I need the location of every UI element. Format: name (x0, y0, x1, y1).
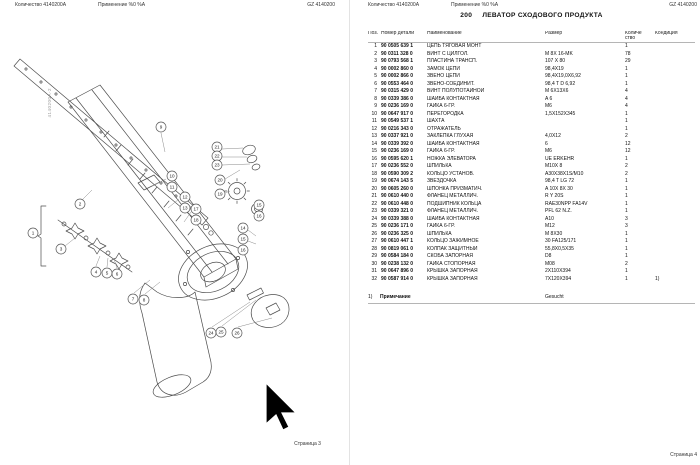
cell-qty: 1 (625, 193, 655, 201)
cell-size: M10X 8 (545, 163, 625, 171)
mouse-cursor-icon (264, 382, 300, 432)
table-row: 290 0311 328 0ВИНТ С ЦИЛГОЛ.M 8X 16-MK78 (368, 51, 695, 59)
cell-qty: 1 (625, 208, 655, 216)
cell-size: 98,4X19,0X6,92 (545, 73, 625, 81)
section-title: 200 ЛЕВАТОР СХОДОВОГО ПРОДУКТА (368, 12, 695, 19)
col-condition: Кондиция (655, 31, 695, 41)
cell-name: КРЫШКА ЗАПОРНАЯ (427, 268, 545, 276)
cell-pos: 13 (368, 133, 381, 141)
table-row: 3090 0238 132 0ГАЙКА СТОПОРНАЯM082 (368, 261, 695, 269)
cell-name: ШПИЛЬКА (427, 231, 545, 239)
balloon-label: 19 (217, 192, 223, 197)
table-row: 3290 0587 914 0КРЫШКА ЗАПОРНАЯ7X120X3941… (368, 276, 695, 284)
cell-qty: 4 (625, 96, 655, 104)
balloon-label: 9 (160, 125, 163, 130)
table-row: 1090 0647 917 0ПЕРЕГОРОДКА1,5X152X3451 (368, 111, 695, 119)
cell-size: 55,8X0,5X35 (545, 246, 625, 254)
table-row: 3190 0647 896 0КРЫШКА ЗАПОРНАЯ2X110X3941 (368, 268, 695, 276)
table-row: 2690 0236 325 0ШПИЛЬКАM 8X301 (368, 231, 695, 239)
cell-size: 98,4 T LG 72 (545, 178, 625, 186)
cell-size: A 10X 8X 30 (545, 186, 625, 194)
cell-pos: 17 (368, 163, 381, 171)
cell-part: 90 0647 896 0 (381, 268, 427, 276)
cell-qty: 2 (625, 133, 655, 141)
cell-cond (655, 133, 695, 141)
page-footer-left: Страница 3 (265, 441, 350, 447)
cell-qty: 1 (625, 66, 655, 74)
cell-qty: 1 (625, 118, 655, 126)
cell-name: ПЕРЕГОРОДКА (427, 111, 545, 119)
cell-part: 90 0819 061 0 (381, 246, 427, 254)
cell-qty: 2 (625, 163, 655, 171)
balloon-label: 21 (214, 145, 220, 150)
cell-size (545, 118, 625, 126)
table-row: 1790 0236 552 0ШПИЛЬКАM10X 82 (368, 163, 695, 171)
cell-name: ГАЙКА 6-ГР. (427, 103, 545, 111)
cell-qty: 1 (625, 178, 655, 186)
cell-name: ОТРАЖАТЕЛЬ (427, 126, 545, 134)
cell-pos: 12 (368, 126, 381, 134)
table-row: 2090 0605 260 0ШПОНКА ПРИЗМАТИЧ.A 10X 8X… (368, 186, 695, 194)
cell-name: ЗВЕНО-СОЕДИНИТ. (427, 81, 545, 89)
cell-cond (655, 111, 695, 119)
table-header-row: Поз. Номер детали Наименование Размер Ко… (368, 31, 695, 41)
cell-cond (655, 186, 695, 194)
cell-part: 90 0584 184 0 (381, 253, 427, 261)
cell-part: 90 0337 921 0 (381, 133, 427, 141)
cell-part: 90 0236 552 0 (381, 163, 427, 171)
table-row: 2890 0819 061 0КОЛПАК ЗАЩИТНЫЙ55,8X0,5X3… (368, 246, 695, 254)
balloon-label: 20 (217, 178, 223, 183)
cell-pos: 5 (368, 73, 381, 81)
cell-part: 90 0339 321 0 (381, 208, 427, 216)
cell-size: A 6 (545, 96, 625, 104)
cell-size: R Y 20S (545, 193, 625, 201)
table-row: 2590 0236 171 0ГАЙКА 6-ГР.M123 (368, 223, 695, 231)
cell-name: КРЫШКА ЗАПОРНАЯ (427, 276, 545, 284)
cell-qty: 1 (625, 276, 655, 284)
cell-cond (655, 238, 695, 246)
cell-pos: 10 (368, 111, 381, 119)
cell-cond (655, 246, 695, 254)
cell-pos: 3 (368, 58, 381, 66)
header-quantity: Количество 4140200A (368, 2, 419, 8)
table-row: 1590 0236 169 0ГАЙКА 6-ГР.M612 (368, 148, 695, 156)
cell-name: ГАЙКА СТОПОРНАЯ (427, 261, 545, 269)
cell-cond (655, 163, 695, 171)
cell-part: 90 0610 448 0 (381, 201, 427, 209)
cell-pos: 30 (368, 261, 381, 269)
cell-part: 90 0236 169 0 (381, 148, 427, 156)
cell-qty: 1 (625, 238, 655, 246)
cell-qty: 1 (625, 253, 655, 261)
cell-cond (655, 43, 695, 51)
cell-qty: 78 (625, 51, 655, 59)
cell-size: M08 (545, 261, 625, 269)
cell-qty: 1 (625, 73, 655, 81)
cell-cond (655, 126, 695, 134)
cell-pos: 16 (368, 156, 381, 164)
cell-qty: 1 (625, 81, 655, 89)
balloon-label: 15 (256, 203, 262, 208)
table-row: 390 0793 568 1ПЛАСТИНА ТРАНСП.107 X 8029 (368, 58, 695, 66)
cell-name: ВИНТ ПОЛУПОТАЙНОЙ (427, 88, 545, 96)
cell-size: M12 (545, 223, 625, 231)
cell-part: 90 0311 328 0 (381, 51, 427, 59)
cell-part: 90 0647 917 0 (381, 111, 427, 119)
cell-name: ЗВЕНО ЦЕПИ (427, 73, 545, 81)
balloon-label: 16 (240, 248, 246, 253)
cell-qty: 1 (625, 268, 655, 276)
section-number: 200 (460, 12, 472, 19)
balloon-label: 25 (218, 330, 224, 335)
table-row: 1990 0674 143 5ЗВЕЗДОЧКА98,4 T LG 721 (368, 178, 695, 186)
cell-part: 90 0238 132 0 (381, 261, 427, 269)
balloon-label: 22 (214, 154, 220, 159)
cell-pos: 24 (368, 216, 381, 224)
section-title-text: ЛЕВАТОР СХОДОВОГО ПРОДУКТА (482, 12, 602, 19)
table-row: 990 0236 169 0ГАЙКА 6-ГР.M64 (368, 103, 695, 111)
cell-qty: 1 (625, 111, 655, 119)
balloon-label: 3 (60, 247, 63, 252)
cell-size: UE ERKEHR (545, 156, 625, 164)
table-row: 2490 0339 388 0ШАЙБА КОНТАКТНАЯA103 (368, 216, 695, 224)
cell-part: 90 0505 639 1 (381, 43, 427, 51)
cell-cond (655, 58, 695, 66)
cell-pos: 31 (368, 268, 381, 276)
cell-cond (655, 171, 695, 179)
cell-cond (655, 88, 695, 96)
table-row: 490 0002 860 0ЗАМОК ЦЕПИ98,4X191 (368, 66, 695, 74)
cell-pos: 11 (368, 118, 381, 126)
cell-part: 90 0610 447 1 (381, 238, 427, 246)
cell-size: A10 (545, 216, 625, 224)
cell-size (545, 126, 625, 134)
cell-cond (655, 201, 695, 209)
cell-part: 90 0610 440 0 (381, 193, 427, 201)
cell-part: 90 0674 143 5 (381, 178, 427, 186)
cell-part: 90 0339 386 0 (381, 96, 427, 104)
cell-part: 90 0587 914 0 (381, 276, 427, 284)
table-row: 1490 0339 392 0ШАЙБА КОНТАКТНАЯ612 (368, 141, 695, 149)
cell-cond (655, 156, 695, 164)
cell-size: A30X38X1S/M10 (545, 171, 625, 179)
cell-size: M6 (545, 103, 625, 111)
cell-qty: 1 (625, 126, 655, 134)
cell-name: ЗАКЛЕПКА ГЛУХАЯ (427, 133, 545, 141)
header-usage: Применение %0 %A (451, 2, 498, 8)
cell-name: ЦЕПЬ ТЯГОВАЯ МОНТ (427, 43, 545, 51)
cell-pos: 23 (368, 208, 381, 216)
cell-name: ГАЙКА 6-ГР. (427, 223, 545, 231)
cell-pos: 29 (368, 253, 381, 261)
parts-table-body: 190 0505 639 1ЦЕПЬ ТЯГОВАЯ МОНТ1290 0311… (368, 43, 695, 283)
cell-name: КОЛЬЦО УСТАНОВ. (427, 171, 545, 179)
cell-name: ГАЙКА 6-ГР. (427, 148, 545, 156)
balloon-label: 10 (169, 174, 175, 179)
cell-cond (655, 103, 695, 111)
cell-part: 90 0236 169 0 (381, 103, 427, 111)
cell-pos: 15 (368, 148, 381, 156)
cell-size: 1,5X152X345 (545, 111, 625, 119)
cell-cond (655, 178, 695, 186)
table-row: 1890 0590 309 2КОЛЬЦО УСТАНОВ.A30X38X1S/… (368, 171, 695, 179)
cell-pos: 22 (368, 201, 381, 209)
cell-qty: 1 (625, 43, 655, 51)
cell-part: 90 0339 392 0 (381, 141, 427, 149)
cell-part: 90 0002 866 0 (381, 73, 427, 81)
cell-part: 90 0553 464 0 (381, 81, 427, 89)
table-row: 690 0553 464 0ЗВЕНО-СОЕДИНИТ.98,4 T D 6,… (368, 81, 695, 89)
cell-size (545, 43, 625, 51)
cell-size: 98,4 T D 6,92 (545, 81, 625, 89)
cell-size: 4,0X12 (545, 133, 625, 141)
cell-part: 90 0002 860 0 (381, 66, 427, 74)
cell-cond (655, 148, 695, 156)
cell-name: ШАЙБА КОНТАКТНАЯ (427, 216, 545, 224)
cell-size: 6 (545, 141, 625, 149)
table-row: 1690 0595 620 1НОЖКА ЭЛЕВАТОРАUE ERKEHR1 (368, 156, 695, 164)
cell-pos: 27 (368, 238, 381, 246)
balloon-label: 6 (116, 272, 119, 277)
table-row: 2190 0610 440 0ФЛАНЕЦ МЕТАЛЛИЧ.R Y 20S1 (368, 193, 695, 201)
balloon-label: 1 (32, 231, 35, 236)
cell-qty: 4 (625, 88, 655, 96)
cell-pos: 14 (368, 141, 381, 149)
cell-cond (655, 51, 695, 59)
balloon-label: 14 (240, 226, 246, 231)
cell-name: КОЛПАК ЗАЩИТНЫЙ (427, 246, 545, 254)
balloon-label: 8 (143, 298, 146, 303)
cell-size: 107 X 80 (545, 58, 625, 66)
cell-cond (655, 268, 695, 276)
cell-part: 90 0216 343 0 (381, 126, 427, 134)
table-row: 2790 0610 447 1КОЛЬЦО ЗАЖИМНОЕ30 FA125/1… (368, 238, 695, 246)
cell-part: 90 0549 537 1 (381, 118, 427, 126)
footnote-rule (368, 303, 695, 304)
cell-qty: 12 (625, 148, 655, 156)
cell-part: 90 0315 429 0 (381, 88, 427, 96)
table-row: 2390 0339 321 0ФЛАНЕЦ МЕТАЛЛИЧ.PFL 62 N.… (368, 208, 695, 216)
cell-size: M 8X30 (545, 231, 625, 239)
cell-qty: 2 (625, 171, 655, 179)
cell-pos: 4 (368, 66, 381, 74)
balloon-label: 26 (234, 331, 240, 336)
cell-cond (655, 118, 695, 126)
table-row: 1190 0549 537 1ШАХТА1 (368, 118, 695, 126)
col-part-number: Номер детали (381, 31, 427, 41)
balloon-label: 23 (214, 163, 220, 168)
cell-name: ШПИЛЬКА (427, 163, 545, 171)
cell-pos: 6 (368, 81, 381, 89)
cell-name: СКОБА ЗАПОРНАЯ (427, 253, 545, 261)
table-row: 1390 0337 921 0ЗАКЛЕПКА ГЛУХАЯ4,0X122 (368, 133, 695, 141)
cell-qty: 2 (625, 261, 655, 269)
cell-cond (655, 193, 695, 201)
cell-pos: 26 (368, 231, 381, 239)
cell-pos: 7 (368, 88, 381, 96)
cell-qty: 29 (625, 58, 655, 66)
cell-name: ЗАМОК ЦЕПИ (427, 66, 545, 74)
callout-balloons: 1234567891011121317181920212223151614151… (28, 122, 264, 338)
cell-qty: 1 (625, 231, 655, 239)
cell-name: ФЛАНЕЦ МЕТАЛЛИЧ. (427, 193, 545, 201)
cell-pos: 18 (368, 171, 381, 179)
col-pos: Поз. (368, 31, 381, 41)
header-doc-number: GZ 4140200 (640, 2, 697, 8)
cell-name: ШАХТА (427, 118, 545, 126)
catalog-spread: Количество 4140200A Применение %0 %A GZ … (0, 0, 700, 465)
cell-part: 90 0605 260 0 (381, 186, 427, 194)
cell-size: 98,4X19 (545, 66, 625, 74)
balloon-label: 2 (79, 202, 82, 207)
balloon-label: 12 (182, 195, 188, 200)
cell-part: 90 0339 388 0 (381, 216, 427, 224)
cell-qty: 1 (625, 186, 655, 194)
cell-part: 90 0793 568 1 (381, 58, 427, 66)
cell-cond (655, 231, 695, 239)
table-row: 1290 0216 343 0ОТРАЖАТЕЛЬ1 (368, 126, 695, 134)
table-row: 590 0002 866 0ЗВЕНО ЦЕПИ98,4X19,0X6,921 (368, 73, 695, 81)
table-row: 2990 0584 184 0СКОБА ЗАПОРНАЯD81 (368, 253, 695, 261)
cell-pos: 20 (368, 186, 381, 194)
cell-cond (655, 223, 695, 231)
footnote-value: Gesucht (545, 294, 564, 300)
cell-qty: 3 (625, 216, 655, 224)
cell-cond (655, 141, 695, 149)
cell-pos: 19 (368, 178, 381, 186)
cell-cond (655, 261, 695, 269)
cell-pos: 9 (368, 103, 381, 111)
cell-size: M 8X 16-MK (545, 51, 625, 59)
balloon-label: 5 (106, 271, 109, 276)
cell-pos: 28 (368, 246, 381, 254)
cell-size: PFL 62 N.Z. (545, 208, 625, 216)
cell-part: 90 0590 309 2 (381, 171, 427, 179)
cell-pos: 25 (368, 223, 381, 231)
cell-qty: 1 (625, 156, 655, 164)
cell-cond (655, 253, 695, 261)
cell-pos: 21 (368, 193, 381, 201)
cell-name: КОЛЬЦО ЗАЖИМНОЕ (427, 238, 545, 246)
balloon-label: 7 (132, 297, 135, 302)
balloon-label: 17 (193, 207, 199, 212)
footnote-marker: 1) (368, 294, 372, 300)
cell-size: 30 FA125/171 (545, 238, 625, 246)
cell-part: 90 0236 171 0 (381, 223, 427, 231)
cell-size: M 6X13X6 (545, 88, 625, 96)
balloon-label: 18 (193, 218, 199, 223)
cell-size: M6 (545, 148, 625, 156)
col-name: Наименование (427, 31, 545, 41)
balloon-label: 11 (170, 185, 175, 190)
cell-cond (655, 96, 695, 104)
table-row: 190 0505 639 1ЦЕПЬ ТЯГОВАЯ МОНТ1 (368, 43, 695, 51)
cell-qty: 1 (625, 201, 655, 209)
cell-size: RAE30NPP FA14V (545, 201, 625, 209)
cell-name: ФЛАНЕЦ МЕТАЛЛИЧ. (427, 208, 545, 216)
cell-part: 90 0595 620 1 (381, 156, 427, 164)
cell-cond: 1) (655, 276, 695, 284)
cell-cond (655, 66, 695, 74)
cell-name: ШАЙБА КОНТАКТНАЯ (427, 96, 545, 104)
cell-name: ПОДШИПНИК КОЛЬЦА (427, 201, 545, 209)
balloon-label: 16 (256, 214, 262, 219)
cell-part: 90 0236 325 0 (381, 231, 427, 239)
balloon-label: 24 (208, 331, 214, 336)
cell-qty: 4 (625, 103, 655, 111)
table-row: 790 0315 429 0ВИНТ ПОЛУПОТАЙНОЙM 6X13X64 (368, 88, 695, 96)
cell-qty: 12 (625, 141, 655, 149)
cell-cond (655, 73, 695, 81)
cell-qty: 1 (625, 246, 655, 254)
cell-name: НОЖКА ЭЛЕВАТОРА (427, 156, 545, 164)
footnote-label: Примечание (380, 294, 411, 300)
balloon-label: 15 (240, 237, 246, 242)
balloon-label: 4 (95, 270, 98, 275)
cell-qty: 3 (625, 223, 655, 231)
page-footer-right: Страница 4 (640, 452, 697, 458)
cell-cond (655, 208, 695, 216)
col-quantity: Количе ство (625, 31, 655, 41)
cell-pos: 8 (368, 96, 381, 104)
cell-name: ПЛАСТИНА ТРАНСП. (427, 58, 545, 66)
balloon-label: 13 (182, 206, 188, 211)
cell-cond (655, 216, 695, 224)
table-row: 890 0339 386 0ШАЙБА КОНТАКТНАЯA 64 (368, 96, 695, 104)
cell-name: ШПОНКА ПРИЗМАТИЧ. (427, 186, 545, 194)
col-size: Размер (545, 31, 625, 41)
cell-pos: 2 (368, 51, 381, 59)
cell-name: ЗВЕЗДОЧКА (427, 178, 545, 186)
cell-size: D8 (545, 253, 625, 261)
cell-name: ШАЙБА КОНТАКТНАЯ (427, 141, 545, 149)
cell-pos: 1 (368, 43, 381, 51)
cell-size: 2X110X394 (545, 268, 625, 276)
cell-size: 7X120X394 (545, 276, 625, 284)
footnote-row: 1) Примечание Gesucht (368, 294, 695, 302)
cell-pos: 32 (368, 276, 381, 284)
table-row: 2290 0610 448 0ПОДШИПНИК КОЛЬЦАRAE30NPP … (368, 201, 695, 209)
cell-name: ВИНТ С ЦИЛГОЛ. (427, 51, 545, 59)
cell-cond (655, 81, 695, 89)
